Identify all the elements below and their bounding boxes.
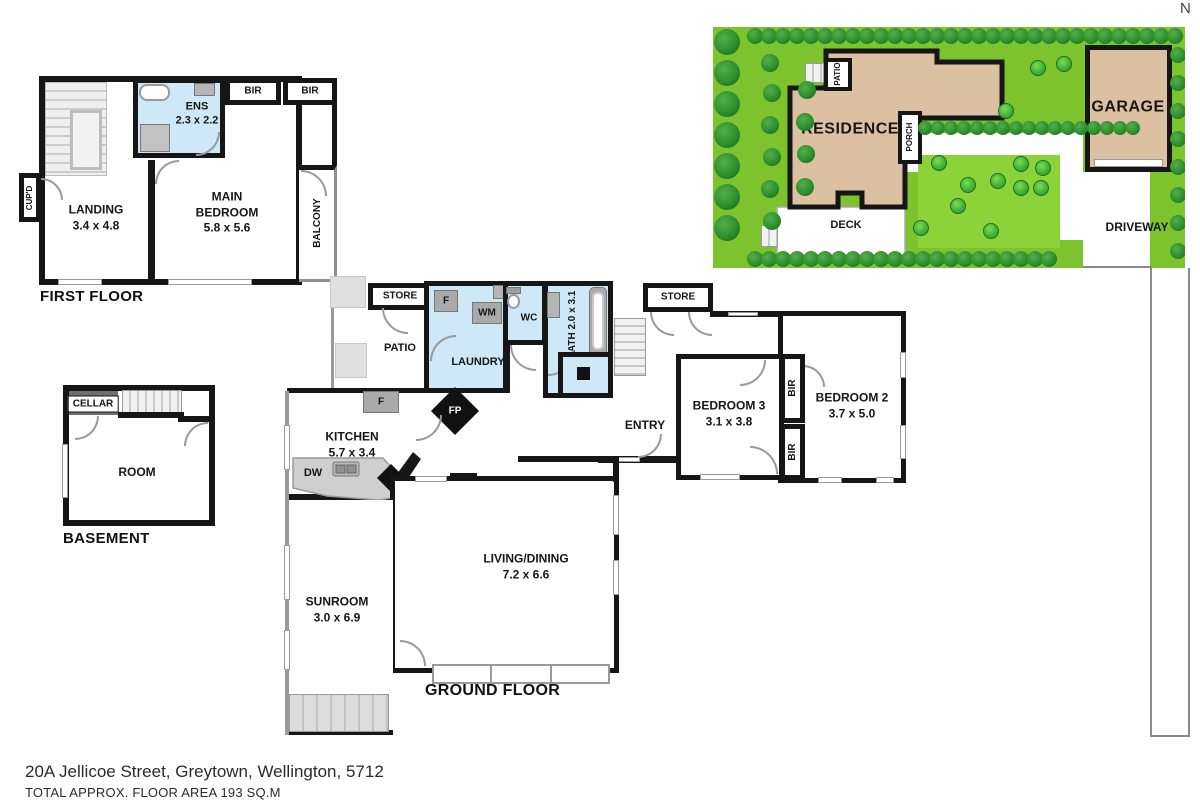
bedroom-nook <box>297 100 337 170</box>
tree-icon <box>763 212 781 230</box>
sunroom-name: SUNROOM <box>306 594 369 610</box>
cupboard-label: CUP'D <box>25 186 35 211</box>
tree-icon <box>1170 131 1185 147</box>
door-arc <box>510 345 536 371</box>
living-name: LIVING/DINING <box>483 551 568 567</box>
sunroom-dims: 3.0 x 6.9 <box>306 610 369 626</box>
main-bedroom-dims: 5.8 x 5.6 <box>179 221 275 237</box>
ens-label: ENS 2.3 x 2.2 <box>176 100 219 129</box>
tree-icon <box>931 121 945 135</box>
window <box>818 477 842 483</box>
sunroom-decking <box>289 694 389 732</box>
site-patio-label: PATIO <box>833 62 843 85</box>
dw-label: DW <box>304 466 322 480</box>
tree-icon <box>1035 121 1049 135</box>
tree-icon <box>983 223 999 239</box>
tree-icon <box>1056 56 1072 72</box>
site-plan: PATIO PORCH RESIDENCE GARAGE DECK DRIVEW… <box>713 27 1185 268</box>
tree-icon <box>714 29 740 55</box>
tree-icon <box>761 54 779 72</box>
window <box>284 630 290 670</box>
basement-room-label: ROOM <box>118 465 155 481</box>
residence-label: RESIDENCE <box>801 120 899 141</box>
tree-icon <box>1113 121 1127 135</box>
ens-name: ENS <box>176 100 219 114</box>
living-top-wall <box>613 456 619 482</box>
sink-bowl <box>347 465 356 473</box>
driveway-strip <box>1150 268 1190 737</box>
window <box>613 495 619 535</box>
tree-icon <box>714 60 740 86</box>
tree-icon <box>950 198 966 214</box>
tree-icon <box>1126 121 1140 135</box>
tree-icon <box>714 184 740 210</box>
bathtub-icon <box>139 84 170 101</box>
landing-bedroom-wall <box>148 160 155 283</box>
store-right-label: STORE <box>661 291 695 304</box>
boundary-line <box>1083 266 1152 268</box>
tree-icon <box>714 215 740 241</box>
tree-icon <box>798 81 816 99</box>
tree-icon <box>990 173 1006 189</box>
tree-icon <box>1033 180 1049 196</box>
bir-label-1: BIR <box>244 85 261 98</box>
driveway-label: DRIVEWAY <box>1106 220 1169 236</box>
window <box>728 312 758 316</box>
tree-icon <box>913 220 929 236</box>
tree-icon <box>1041 251 1057 267</box>
kitchen-name: KITCHEN <box>325 429 378 445</box>
cellar-label: CELLAR <box>68 396 119 413</box>
store-left-label: STORE <box>383 290 417 303</box>
window <box>58 279 102 285</box>
basement-title: BASEMENT <box>63 530 150 547</box>
toilet-tank-icon <box>506 287 521 294</box>
bay-mullion <box>550 666 552 682</box>
living-top-wall <box>518 456 602 462</box>
tree-icon <box>1100 121 1114 135</box>
tree-icon <box>1170 103 1185 119</box>
shower-icon <box>140 124 170 152</box>
window <box>62 444 68 498</box>
bathtub-inner <box>592 292 604 350</box>
tree-icon <box>1061 121 1075 135</box>
landing-dims: 3.4 x 4.8 <box>69 218 124 234</box>
landing-name: LANDING <box>69 202 124 218</box>
door-arc <box>638 434 662 458</box>
window <box>284 545 290 600</box>
window <box>900 352 906 378</box>
main-bedroom-label: MAIN BEDROOM 5.8 x 5.6 <box>179 190 275 237</box>
laundry-label: LAUNDRY <box>451 355 504 369</box>
wc-label: WC <box>521 312 538 325</box>
tree-icon <box>996 121 1010 135</box>
kitchen-fridge-label: F <box>378 396 384 409</box>
wm-label: WM <box>478 307 496 320</box>
tree-icon <box>944 121 958 135</box>
entry-label: ENTRY <box>625 418 665 434</box>
deck-label: DECK <box>830 218 861 232</box>
tree-icon <box>1170 243 1185 259</box>
bir-label-top: BIR <box>787 379 800 396</box>
window <box>700 474 740 480</box>
site-porch-label: PORCH <box>905 123 915 152</box>
stair-rail <box>70 110 102 170</box>
bedroom2-dims: 3.7 x 5.0 <box>816 406 889 422</box>
hall-wall <box>503 343 509 391</box>
tree-icon <box>1167 28 1183 44</box>
tree-icon <box>1035 160 1051 176</box>
tree-icon <box>1087 121 1101 135</box>
bath-dims: 2.0 x 3.1 <box>567 291 578 330</box>
patio-paving <box>330 276 366 308</box>
door-arc <box>382 308 408 334</box>
tree-icon <box>1170 47 1185 63</box>
tree-icon <box>970 121 984 135</box>
north-compass: N <box>1180 0 1191 17</box>
living-label: LIVING/DINING 7.2 x 6.6 <box>483 551 568 582</box>
bedroom2-name: BEDROOM 2 <box>816 390 889 406</box>
tree-icon <box>1030 60 1046 76</box>
door-arc <box>650 312 674 336</box>
living-dims: 7.2 x 6.6 <box>483 567 568 583</box>
door-arc <box>688 312 712 336</box>
fireplace-label: FP <box>449 406 462 417</box>
tree-icon <box>796 178 814 196</box>
bedroom3-name: BEDROOM 3 <box>693 398 766 414</box>
bedroom3-dims: 3.1 x 3.8 <box>693 414 766 430</box>
ground-floor-title: GROUND FLOOR <box>425 682 560 700</box>
patio-steps <box>805 63 824 83</box>
tree-icon <box>918 121 932 135</box>
tree-icon <box>796 113 814 131</box>
window <box>168 279 252 285</box>
sunroom-label: SUNROOM 3.0 x 6.9 <box>306 594 369 625</box>
bay-window <box>432 664 610 684</box>
bedroom2-label: BEDROOM 2 3.7 x 5.0 <box>816 390 889 421</box>
tree-icon <box>1074 121 1088 135</box>
window <box>415 476 447 482</box>
bir-label-2: BIR <box>301 85 318 98</box>
gf-patio-label: PATIO <box>384 341 416 355</box>
address-line: 20A Jellicoe Street, Greytown, Wellingto… <box>25 762 384 782</box>
tree-icon <box>931 155 947 171</box>
tree-icon <box>714 91 740 117</box>
fridge-label: F <box>443 295 449 308</box>
tree-icon <box>983 121 997 135</box>
tree-icon <box>761 116 779 134</box>
window <box>613 560 619 595</box>
tree-icon <box>714 153 740 179</box>
basement-stair-wall <box>118 412 184 418</box>
tree-icon <box>1170 187 1185 203</box>
window <box>876 477 894 483</box>
landing-label: LANDING 3.4 x 4.8 <box>69 202 124 233</box>
main-bedroom-name: MAIN BEDROOM <box>179 190 275 221</box>
path-area <box>1060 160 1083 240</box>
hot-water-cylinder-icon <box>577 367 590 380</box>
tree-icon <box>998 103 1014 119</box>
bay-mullion <box>490 666 492 682</box>
tree-icon <box>1013 180 1029 196</box>
floor-plan-canvas: ENS 2.3 x 2.2 BIR BIR BALCONY CUP'D LAND… <box>0 0 1200 800</box>
basement-stairs <box>122 390 182 413</box>
sink-bowl <box>336 465 345 473</box>
patio-paving <box>335 343 367 378</box>
tree-icon <box>957 121 971 135</box>
tree-icon <box>1170 215 1185 231</box>
basin-icon <box>194 83 215 96</box>
entry-stairs <box>614 318 646 376</box>
ens-dims: 2.3 x 2.2 <box>176 114 219 128</box>
patio-edge <box>331 308 334 388</box>
window <box>284 425 290 470</box>
basin-icon <box>547 292 560 318</box>
tree-icon <box>763 148 781 166</box>
tree-icon <box>763 84 781 102</box>
tree-icon <box>960 177 976 193</box>
tree-icon <box>761 180 779 198</box>
tree-icon <box>714 122 740 148</box>
window <box>900 425 906 459</box>
tree-icon <box>1009 121 1023 135</box>
balcony-label: BALCONY <box>312 198 325 247</box>
tree-icon <box>1170 159 1185 175</box>
tree-icon <box>1170 75 1185 91</box>
tree-icon <box>1013 156 1029 172</box>
bedroom3-label: BEDROOM 3 3.1 x 3.8 <box>693 398 766 429</box>
bir-label-bottom: BIR <box>787 443 800 460</box>
toilet-bowl-icon <box>507 294 520 309</box>
tree-icon <box>797 145 815 163</box>
garage-door <box>1094 159 1163 167</box>
garage-label: GARAGE <box>1091 98 1164 119</box>
first-floor-title: FIRST FLOOR <box>40 288 143 305</box>
tree-icon <box>1048 121 1062 135</box>
tree-icon <box>1022 121 1036 135</box>
floor-area-line: TOTAL APPROX. FLOOR AREA 193 SQ.M <box>25 785 281 800</box>
